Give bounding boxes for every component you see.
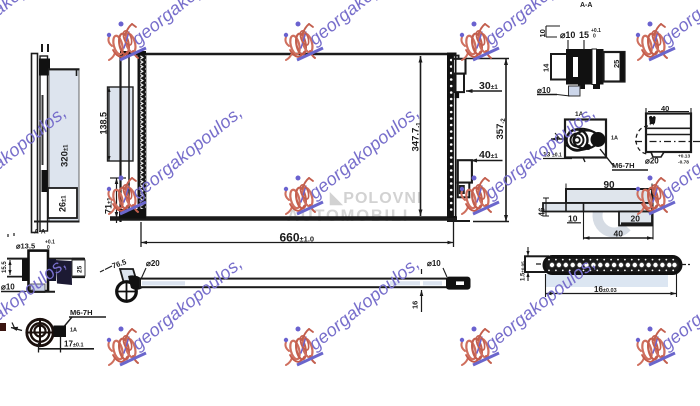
svg-text:138.5: 138.5: [99, 112, 109, 135]
svg-text:⌀10: ⌀10: [427, 259, 441, 268]
svg-text:40: 40: [661, 104, 669, 113]
svg-text:40: 40: [614, 229, 624, 239]
svg-text:◣POLOVNI: ◣POLOVNI: [329, 190, 422, 207]
svg-text:M6-7H: M6-7H: [612, 161, 635, 170]
svg-text:M6-7H: M6-7H: [70, 308, 93, 317]
svg-text:14: 14: [542, 63, 551, 72]
svg-text:1A: 1A: [611, 136, 618, 142]
svg-text:+0.13: +0.13: [678, 154, 690, 160]
svg-text:90: 90: [604, 180, 616, 191]
svg-text:10: 10: [538, 29, 547, 37]
svg-text:25: 25: [77, 265, 84, 273]
svg-text:1A: 1A: [70, 328, 77, 334]
svg-text:⌀20: ⌀20: [146, 259, 160, 268]
svg-text:⌀20: ⌀20: [645, 157, 659, 166]
svg-text:357-2: 357-2: [495, 118, 507, 140]
svg-text:⌀13.5: ⌀13.5: [16, 242, 35, 251]
svg-text:46: 46: [538, 207, 547, 216]
svg-text:17±0.1: 17±0.1: [64, 340, 84, 349]
svg-text:10: 10: [568, 214, 578, 224]
svg-text:15.5: 15.5: [2, 261, 8, 273]
svg-text:0: 0: [593, 34, 596, 40]
svg-text:20: 20: [631, 214, 641, 224]
svg-text:⌀10: ⌀10: [560, 30, 575, 40]
svg-text:30±1: 30±1: [479, 80, 498, 92]
svg-text:40±1: 40±1: [479, 149, 498, 161]
svg-text:A-A: A-A: [34, 229, 46, 236]
svg-text:A-A: A-A: [580, 2, 592, 9]
svg-text:15: 15: [579, 30, 589, 40]
svg-text:25: 25: [612, 60, 621, 68]
svg-text:18: 18: [650, 118, 656, 125]
svg-text:16: 16: [411, 301, 420, 309]
svg-text:0: 0: [47, 245, 50, 251]
svg-text:⌀10: ⌀10: [537, 86, 551, 95]
svg-text:660±1.0: 660±1.0: [280, 231, 315, 245]
